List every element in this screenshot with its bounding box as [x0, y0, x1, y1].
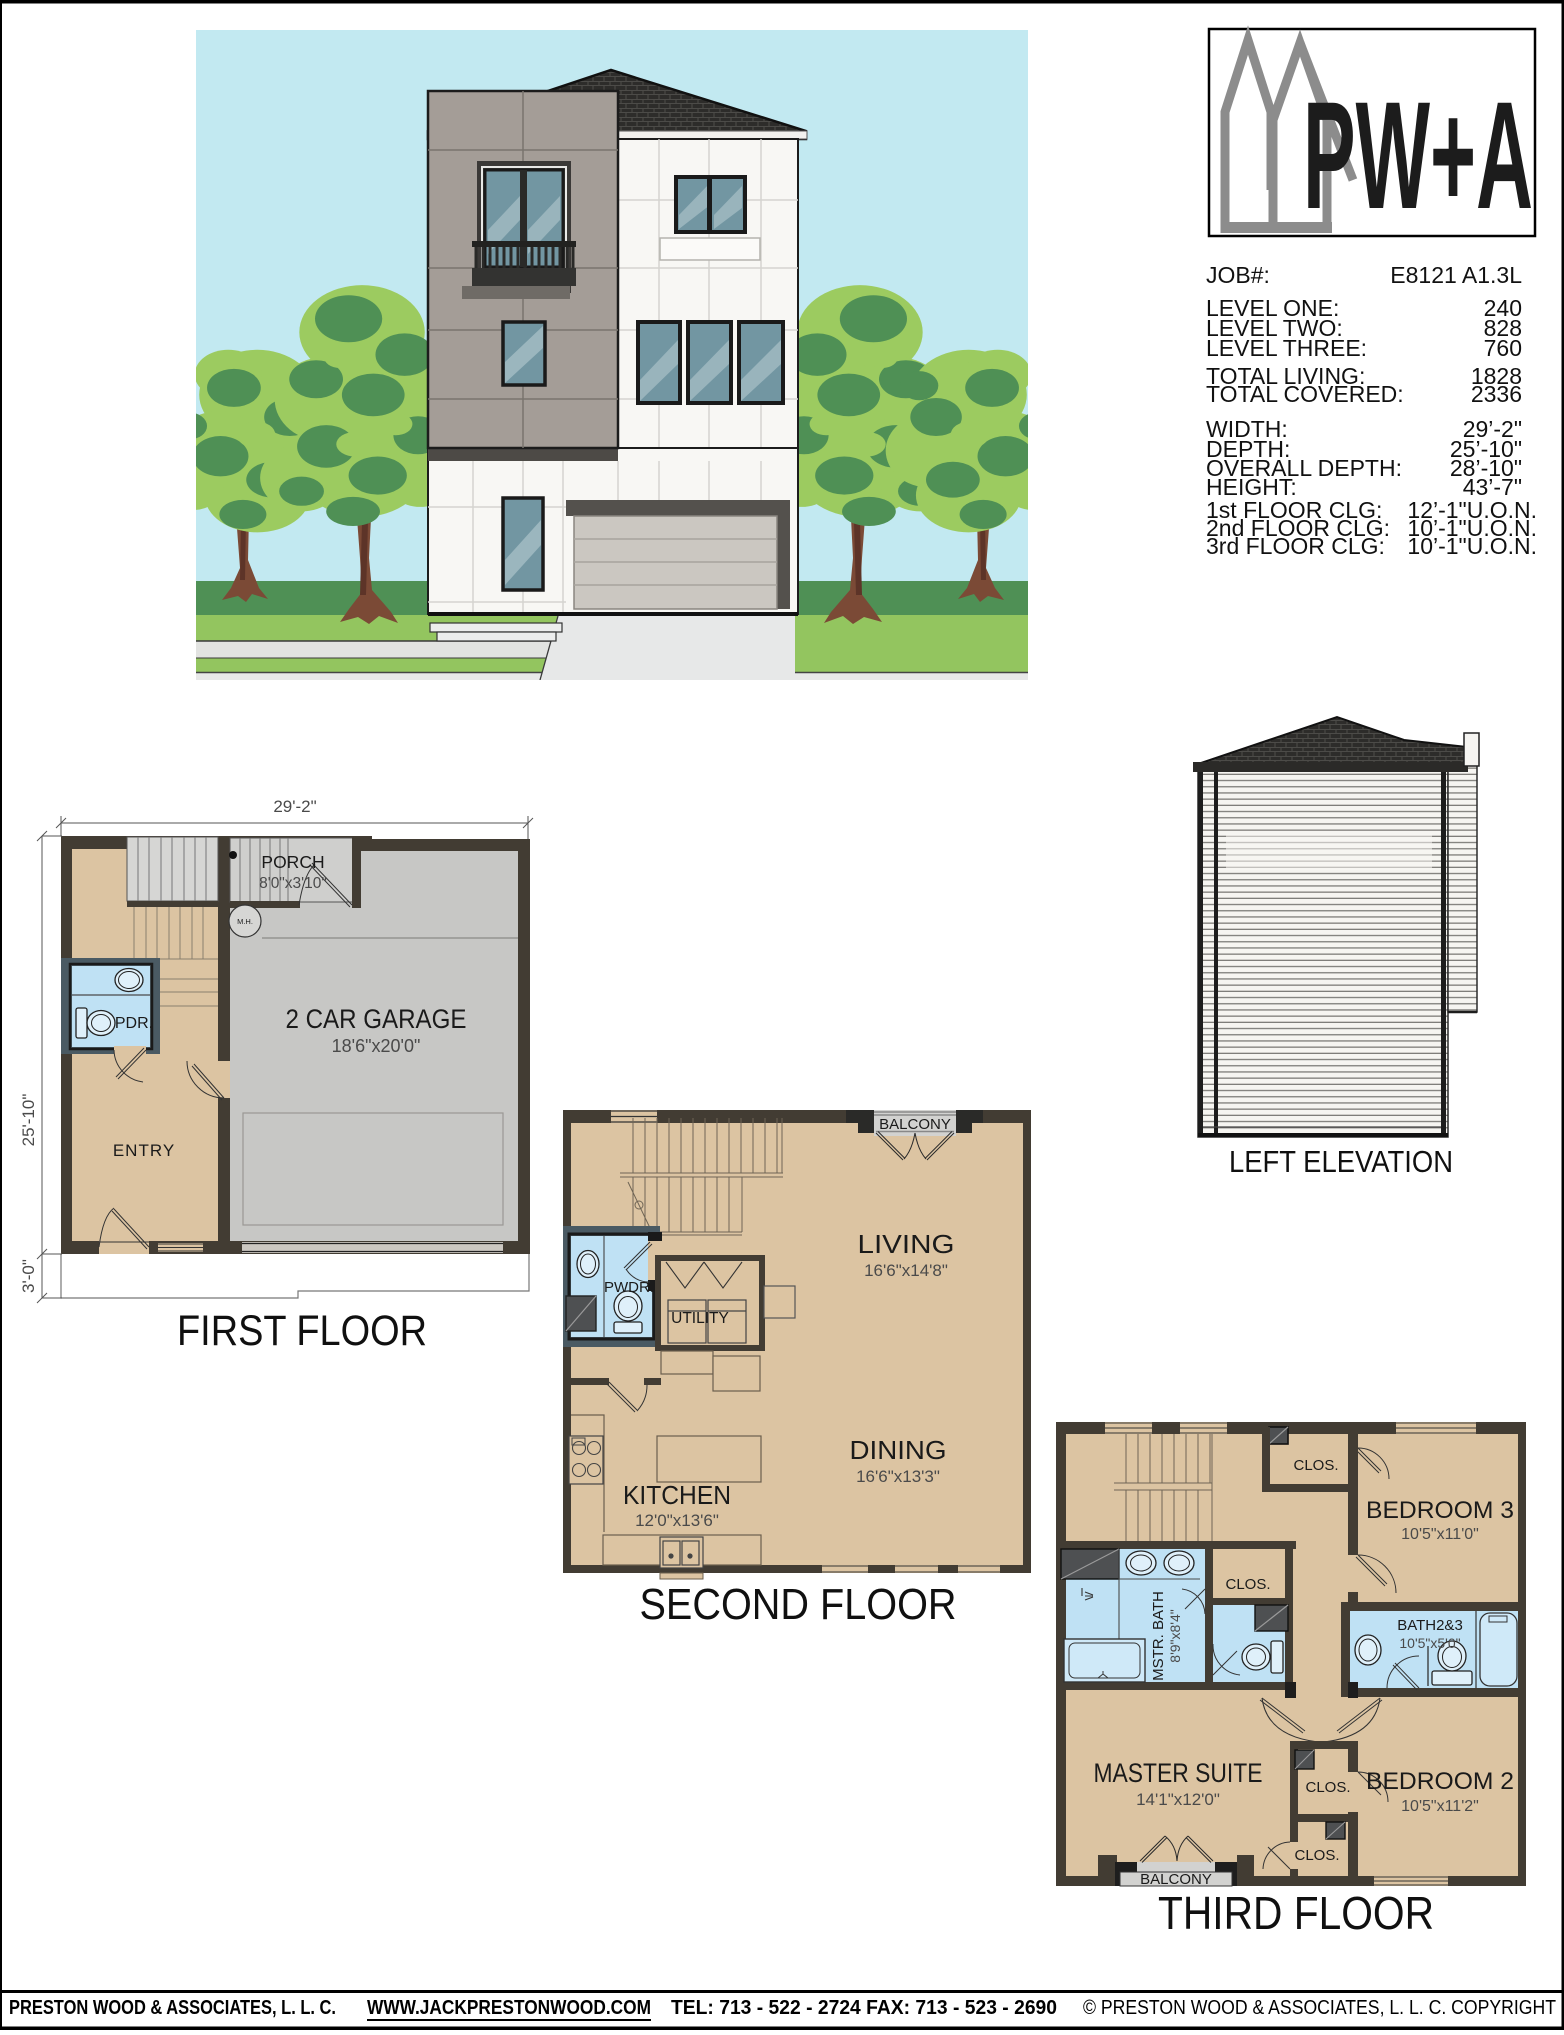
- svg-text:BALCONY: BALCONY: [1140, 1871, 1212, 1888]
- svg-text:LEFT ELEVATION: LEFT ELEVATION: [1229, 1145, 1453, 1179]
- svg-text:DINING: DINING: [850, 1435, 947, 1465]
- svg-text:THIRD FLOOR: THIRD FLOOR: [1158, 1887, 1434, 1939]
- svg-text:2 CAR GARAGE: 2 CAR GARAGE: [286, 1004, 467, 1034]
- svg-text:M.H.: M.H.: [237, 917, 253, 926]
- svg-text:10’-1"U.O.N.: 10’-1"U.O.N.: [1407, 533, 1537, 559]
- svg-text:18'6"x20'0": 18'6"x20'0": [332, 1036, 421, 1056]
- svg-text:PRESTON WOOD & ASSOCIATES, L.: PRESTON WOOD & ASSOCIATES, L. L. C.: [9, 1997, 336, 2019]
- svg-text:8'9"x8'4": 8'9"x8'4": [1167, 1609, 1183, 1662]
- svg-text:8'0"x3'10": 8'0"x3'10": [259, 875, 327, 892]
- svg-text:TEL: 713 - 522 - 2724 FAX:: TEL: 713 - 522 - 2724 FAX: 713 - 523 - 2…: [671, 1997, 1057, 2019]
- svg-text:10'5"x11'2": 10'5"x11'2": [1401, 1798, 1479, 1815]
- svg-text:MSTR. BATH: MSTR. BATH: [1150, 1591, 1167, 1681]
- svg-text:2336: 2336: [1471, 381, 1522, 407]
- svg-text:CLOS.: CLOS.: [1294, 1847, 1339, 1864]
- svg-text:10'5"x11'0": 10'5"x11'0": [1401, 1526, 1479, 1543]
- svg-text:29'-2": 29'-2": [273, 797, 316, 816]
- svg-text:CLOS.: CLOS.: [1305, 1779, 1350, 1796]
- svg-text:SECOND FLOOR: SECOND FLOOR: [640, 1580, 957, 1629]
- svg-text:E8121 A1.3L: E8121 A1.3L: [1390, 262, 1522, 288]
- svg-text:UTILITY: UTILITY: [671, 1310, 729, 1327]
- svg-text:BATH2&3: BATH2&3: [1397, 1617, 1463, 1634]
- svg-text:BALCONY: BALCONY: [879, 1116, 951, 1133]
- svg-text:25'-10": 25'-10": [19, 1094, 38, 1147]
- svg-text:LEVEL THREE:: LEVEL THREE:: [1206, 335, 1367, 361]
- svg-text:3'-0": 3'-0": [19, 1259, 38, 1293]
- svg-text:CLOS.: CLOS.: [1225, 1576, 1270, 1593]
- svg-text:ENTRY: ENTRY: [113, 1141, 175, 1160]
- svg-text:© PRESTON WOOD & ASSOCIATES, L: © PRESTON WOOD & ASSOCIATES, L. L. C. CO…: [1083, 1997, 1556, 2019]
- svg-text:WWW.JACKPRESTONWOOD.COM: WWW.JACKPRESTONWOOD.COM: [367, 1997, 651, 2019]
- svg-text:TOTAL COVERED:: TOTAL COVERED:: [1206, 381, 1404, 407]
- svg-text:760: 760: [1484, 335, 1522, 361]
- svg-text:BEDROOM 2: BEDROOM 2: [1366, 1768, 1514, 1795]
- svg-text:PORCH: PORCH: [261, 852, 324, 872]
- svg-text:PDR.: PDR.: [115, 1015, 153, 1032]
- svg-text:MASTER SUITE: MASTER SUITE: [1094, 1758, 1263, 1788]
- svg-text:KITCHEN: KITCHEN: [623, 1480, 731, 1510]
- svg-text:JOB#:: JOB#:: [1206, 262, 1270, 288]
- svg-text:FIRST FLOOR: FIRST FLOOR: [177, 1307, 427, 1355]
- svg-text:14'1"x12'0": 14'1"x12'0": [1136, 1790, 1220, 1809]
- svg-text:16'6"x14'8": 16'6"x14'8": [864, 1261, 948, 1280]
- svg-text:CLOS.: CLOS.: [1293, 1457, 1338, 1474]
- svg-text:BEDROOM 3: BEDROOM 3: [1366, 1497, 1514, 1524]
- svg-text:12'0"x13'6": 12'0"x13'6": [635, 1511, 719, 1530]
- svg-text:16'6"x13'3": 16'6"x13'3": [856, 1467, 940, 1486]
- svg-text:3rd FLOOR CLG:: 3rd FLOOR CLG:: [1206, 533, 1385, 559]
- svg-text:LIVING: LIVING: [858, 1229, 955, 1259]
- svg-text:PW+A: PW+A: [1303, 70, 1533, 241]
- svg-text:10'5"x5'0": 10'5"x5'0": [1399, 1635, 1460, 1651]
